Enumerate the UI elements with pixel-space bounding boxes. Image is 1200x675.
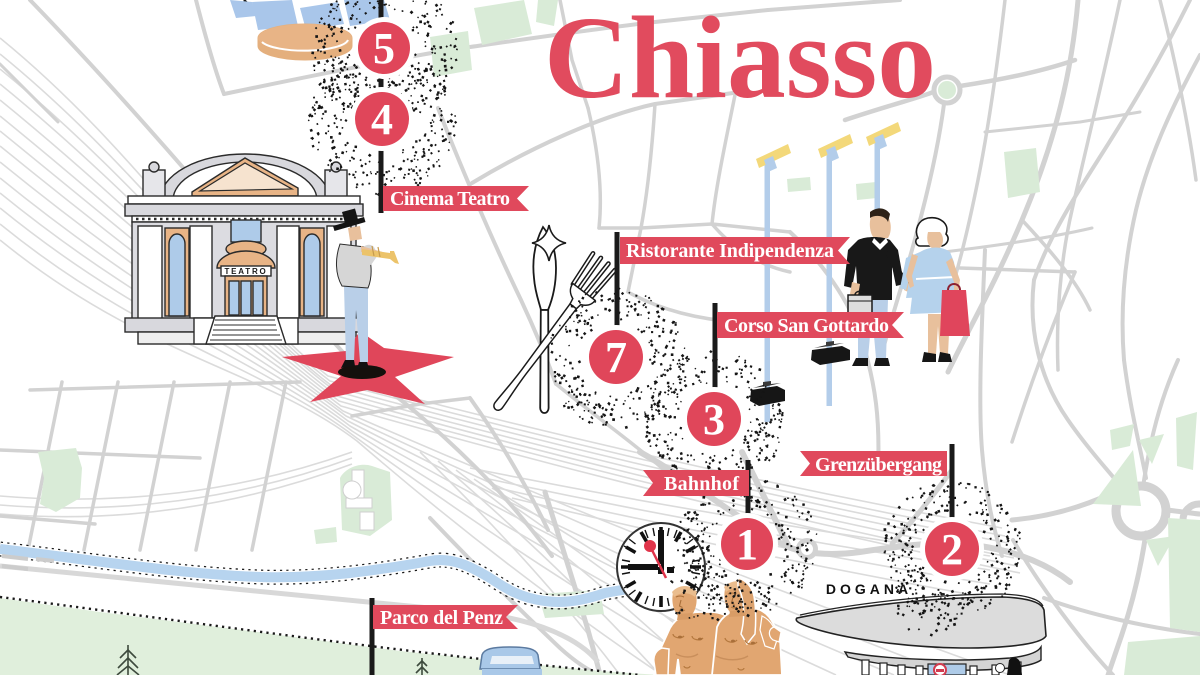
svg-text:2: 2 xyxy=(941,525,963,574)
svg-text:TEATRO: TEATRO xyxy=(224,267,267,276)
svg-text:Cinema Teatro: Cinema Teatro xyxy=(390,188,510,210)
svg-text:5: 5 xyxy=(373,24,395,73)
svg-text:DOGANA: DOGANA xyxy=(826,581,912,597)
svg-text:7: 7 xyxy=(605,333,627,382)
svg-text:Bahnhof: Bahnhof xyxy=(664,473,739,495)
svg-text:4: 4 xyxy=(371,95,393,144)
svg-text:Chiasso: Chiasso xyxy=(544,0,936,123)
svg-text:Grenzübergang: Grenzübergang xyxy=(815,454,942,476)
svg-text:Ristorante Indipendenza: Ristorante Indipendenza xyxy=(626,240,834,262)
svg-text:Corso San Gottardo: Corso San Gottardo xyxy=(724,315,889,337)
svg-text:1: 1 xyxy=(736,520,758,569)
svg-text:3: 3 xyxy=(703,395,725,444)
svg-text:Parco del Penz: Parco del Penz xyxy=(380,607,503,629)
